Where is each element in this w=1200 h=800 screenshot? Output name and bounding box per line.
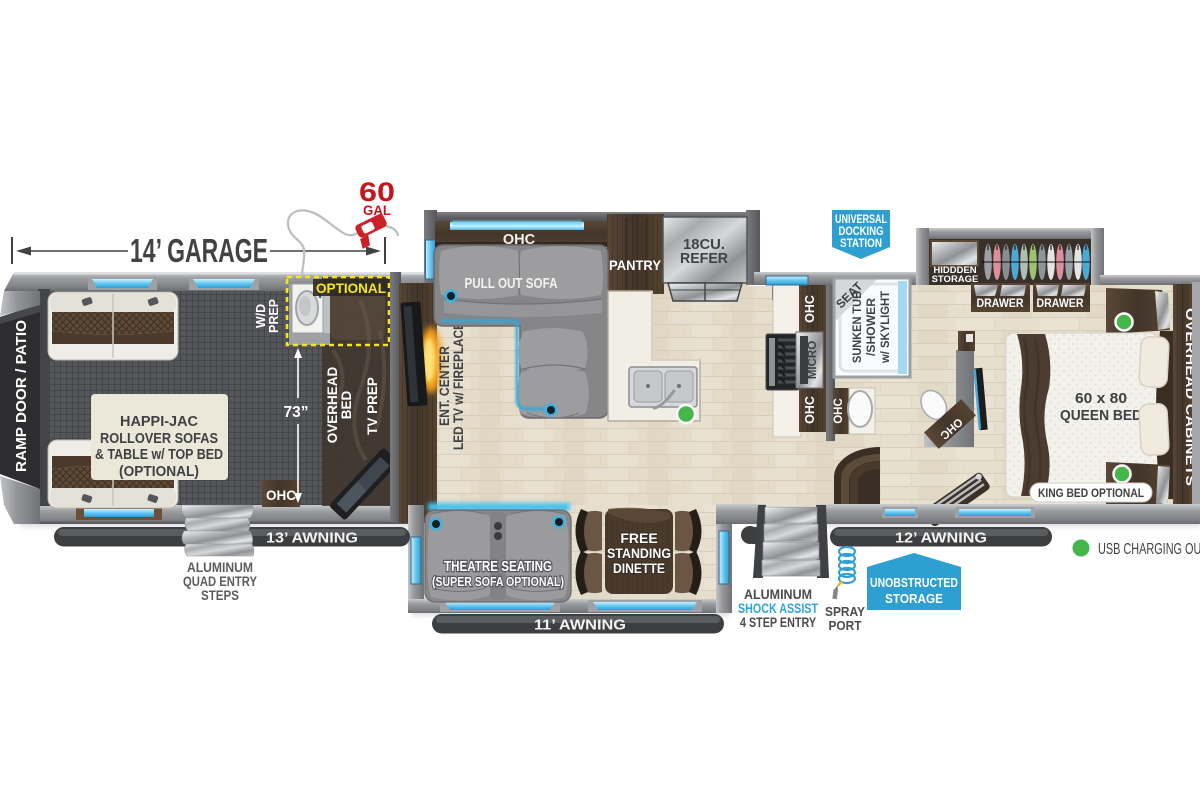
svg-text:OHC: OHC [803, 295, 817, 323]
svg-text:OHC: OHC [266, 488, 296, 503]
svg-text:OVERHEAD: OVERHEAD [325, 366, 340, 443]
svg-text:/SHOWER: /SHOWER [864, 298, 878, 356]
svg-text:STORAGE: STORAGE [885, 591, 943, 606]
svg-text:60 x 80: 60 x 80 [1075, 390, 1127, 407]
svg-text:12’ AWNING: 12’ AWNING [895, 531, 987, 547]
svg-text:PANTRY: PANTRY [609, 257, 662, 273]
svg-text:OPTIONAL: OPTIONAL [316, 280, 386, 296]
svg-text:DRAWER: DRAWER [1037, 296, 1084, 310]
svg-text:REFER: REFER [680, 251, 729, 267]
svg-text:QUAD ENTRY: QUAD ENTRY [183, 574, 257, 589]
svg-text:DOCKING: DOCKING [839, 226, 884, 238]
svg-text:& TABLE w/ TOP BED: & TABLE w/ TOP BED [95, 447, 223, 463]
svg-text:RAMP DOOR / PATIO: RAMP DOOR / PATIO [14, 320, 30, 472]
svg-text:(SUPER SOFA OPTIONAL): (SUPER SOFA OPTIONAL) [432, 574, 564, 589]
svg-text:OHC: OHC [803, 396, 817, 424]
svg-text:13’ AWNING: 13’ AWNING [266, 531, 358, 547]
svg-text:DINETTE: DINETTE [613, 560, 665, 576]
svg-text:14’ GARAGE: 14’ GARAGE [130, 232, 268, 269]
svg-text:PULL OUT SOFA: PULL OUT SOFA [465, 275, 558, 292]
svg-text:SHOCK ASSIST: SHOCK ASSIST [738, 601, 819, 616]
svg-text:ALUMINUM: ALUMINUM [187, 560, 253, 575]
svg-text:OHC: OHC [833, 398, 845, 424]
svg-text:SUNKEN TUB: SUNKEN TUB [850, 291, 864, 363]
svg-text:STEPS: STEPS [201, 588, 239, 603]
svg-text:ALUMINUM: ALUMINUM [744, 587, 812, 602]
svg-text:FREE: FREE [620, 530, 657, 546]
svg-text:4 STEP ENTRY: 4 STEP ENTRY [740, 615, 816, 630]
svg-text:UNIVERSAL: UNIVERSAL [835, 214, 887, 226]
svg-text:PREP: PREP [267, 299, 281, 333]
svg-text:HAPPI-JAC: HAPPI-JAC [120, 414, 199, 430]
svg-text:SPRAY: SPRAY [825, 604, 865, 619]
svg-text:USB CHARGING OUT: USB CHARGING OUT [1098, 541, 1200, 558]
svg-text:11’ AWNING: 11’ AWNING [534, 618, 626, 634]
svg-text:TV PREP: TV PREP [365, 377, 380, 435]
svg-text:DRAWER: DRAWER [977, 296, 1024, 310]
svg-text:W/D: W/D [254, 304, 268, 328]
svg-text:KING BED OPTIONAL: KING BED OPTIONAL [1038, 486, 1144, 500]
svg-text:LED TV w/ FIREPLACE: LED TV w/ FIREPLACE [450, 322, 466, 450]
svg-text:UNOBSTRUCTED: UNOBSTRUCTED [870, 575, 958, 590]
svg-text:BED: BED [339, 391, 354, 420]
svg-text:QUEEN BED: QUEEN BED [1060, 407, 1142, 424]
svg-text:(OPTIONAL): (OPTIONAL) [119, 464, 199, 480]
svg-text:PORT: PORT [829, 618, 862, 633]
svg-text:STATION: STATION [840, 238, 882, 250]
svg-text:w/ SKYLIGHT: w/ SKYLIGHT [878, 290, 892, 364]
svg-text:MICRO: MICRO [807, 341, 819, 379]
svg-text:ROLLOVER SOFAS: ROLLOVER SOFAS [100, 431, 218, 447]
svg-text:STANDING: STANDING [607, 545, 671, 561]
svg-text:THEATRE SEATING: THEATRE SEATING [444, 559, 552, 575]
svg-text:73”: 73” [284, 404, 309, 421]
